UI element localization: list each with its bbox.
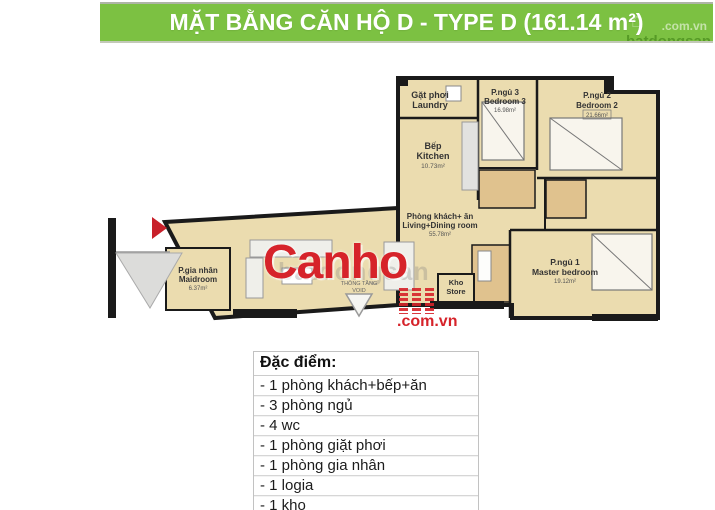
feature-item: - 1 kho [254, 496, 478, 510]
laundry-label-vi: Gặt phơi [411, 90, 448, 100]
kitchen-counter [462, 122, 478, 190]
bedroom2-label-en: Bedroom 2 [576, 101, 618, 110]
maid-label-vi: P.gia nhân [178, 266, 218, 275]
feature-item: - 1 phòng khách+bếp+ăn [254, 376, 478, 396]
canho-logo: Canho [263, 239, 407, 287]
bedroom2-area: 21.66m² [586, 113, 608, 119]
wall-chunk [430, 301, 504, 309]
sofa-corner [246, 258, 263, 298]
master-area: 19.12m² [554, 279, 576, 285]
wall-bar-left [108, 218, 116, 318]
bedroom3-label-en: Bedroom 3 [484, 97, 526, 106]
canho-mark-column [425, 288, 434, 314]
maid-label-en: Maidroom [179, 275, 217, 284]
bedroom2-label-vi: P.ngủ 2 [583, 91, 611, 100]
title-banner: MẶT BẰNG CĂN HỘ D - TYPE D (161.14 m²) ⌂… [100, 2, 713, 43]
page: MẶT BẰNG CĂN HỘ D - TYPE D (161.14 m²) ⌂… [0, 0, 715, 510]
laundry-label-en: Laundry [412, 100, 448, 110]
canho-domain: .com.vn [397, 313, 457, 331]
feature-item: - 1 phòng gia nhân [254, 456, 478, 476]
bathroom-2 [546, 180, 586, 218]
kitchen-area: 10.73m² [421, 163, 446, 170]
bedroom3-label-vi: P.ngủ 3 [491, 88, 519, 97]
kitchen-label-vi: Bếp [424, 141, 442, 151]
banner-watermark-brand: batdongsan [626, 33, 711, 43]
floorplan-drawing: Gặt phơi Laundry Bếp Kitchen 10.73m² P.n… [0, 50, 715, 350]
store-label-en: Store [446, 287, 465, 296]
living-label-vi: Phòng khách+ ăn [407, 212, 474, 221]
living-label-en: Living+Dining room [402, 221, 477, 230]
features-table: Đặc điểm: - 1 phòng khách+bếp+ăn - 3 phò… [253, 351, 479, 510]
feature-item: - 1 phòng giặt phơi [254, 436, 478, 456]
bedroom3-area: 16.98m² [494, 108, 516, 114]
page-title: MẶT BẰNG CĂN HỘ D - TYPE D (161.14 m²) [169, 9, 643, 36]
canho-mark-column [412, 288, 421, 314]
kitchen-label-en: Kitchen [416, 151, 449, 161]
living-area: 55.78m² [429, 232, 451, 238]
feature-item: - 1 logia [254, 476, 478, 496]
store-label-vi: Kho [449, 278, 464, 287]
features-header: Đặc điểm: [254, 352, 478, 376]
wall-chunk [396, 76, 408, 86]
bathroom-1 [479, 170, 535, 208]
master-label-en: Master bedroom [532, 267, 599, 277]
canho-vertical-marks [399, 288, 434, 314]
canho-mark-column [399, 288, 408, 314]
feature-item: - 3 phòng ngủ [254, 396, 478, 416]
wall-chunk [233, 309, 297, 318]
house-watermark-icon: ⌂ [631, 10, 643, 33]
floorplan: Gặt phơi Laundry Bếp Kitchen 10.73m² P.n… [0, 50, 715, 350]
banner-watermark-domain: .com.vn [662, 19, 707, 33]
bathtub [478, 251, 491, 281]
master-label-vi: P.ngủ 1 [550, 257, 580, 267]
wall-chunk [592, 314, 658, 321]
feature-item: - 4 wc [254, 416, 478, 436]
maid-area: 6.37m² [189, 286, 208, 292]
